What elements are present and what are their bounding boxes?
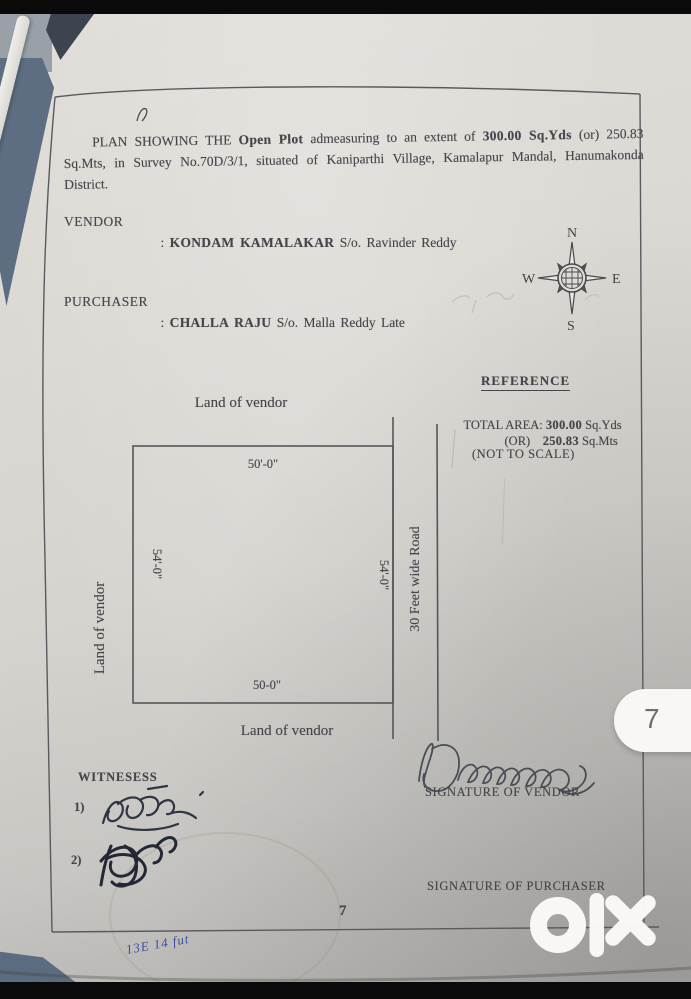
page-number-bottom: 7 [339, 903, 347, 920]
top-letterbox-bar [0, 0, 691, 14]
bottom-letterbox-bar [0, 982, 691, 999]
photo-of-document: PLAN SHOWING THE Open Plot admeasuring t… [0, 0, 691, 999]
vendor-signature-icon [0, 0, 691, 999]
signature-of-vendor-caption: SIGNATURE OF VENDOR [425, 785, 580, 800]
olx-watermark-icon [520, 885, 691, 975]
page-badge-number: 7 [644, 703, 660, 735]
page-badge: 7 [614, 689, 691, 752]
